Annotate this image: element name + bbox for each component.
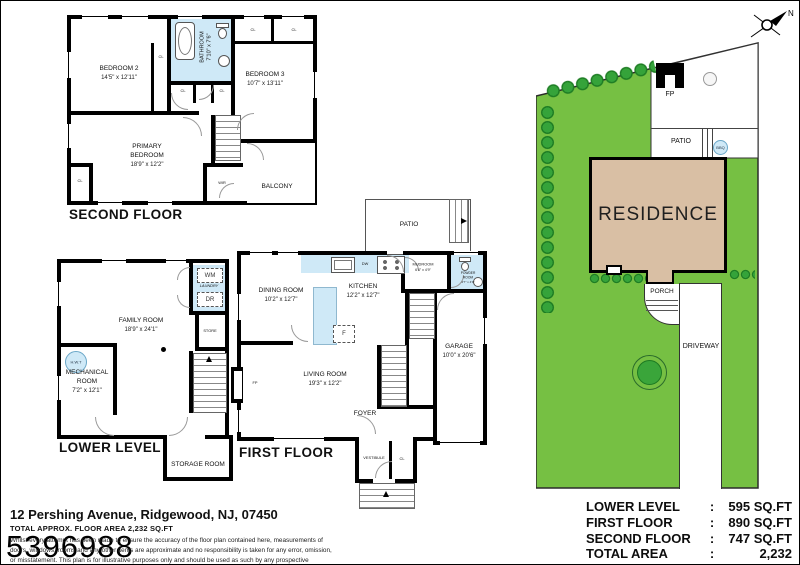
wall-segment (231, 139, 317, 143)
patio-step-line (712, 128, 713, 158)
residence-label: RESIDENCE (598, 204, 718, 226)
wall-segment (195, 315, 199, 349)
window-marker (81, 15, 109, 19)
lower-level-plan: WM LAUNDRY DR H.W.T FAMILY ROOM18'9" x 2… (57, 259, 237, 489)
door-arc (177, 295, 190, 308)
room-label-powder: POWDER ROOM2'7" x 4'9" (457, 271, 480, 284)
wall-segment (271, 19, 274, 43)
fireplace-label: FP (253, 381, 258, 386)
steps-direction-arrow (383, 491, 389, 497)
window-marker (243, 15, 265, 19)
window-marker (313, 71, 317, 99)
bath-sink-icon (218, 55, 230, 67)
door-arc (375, 461, 392, 478)
row-label: TOTAL AREA (586, 546, 704, 565)
patio-step-line (702, 128, 703, 158)
room-label-primary-bedroom: PRIMARY BEDROOM18'9" x 12'2" (116, 143, 178, 169)
dishwasher-label: DW (362, 262, 369, 267)
floorplan-canvas: N (0, 0, 800, 565)
row-value: 890 SQ.FT (720, 515, 792, 531)
room-label-balcony: BALCONY (261, 183, 292, 192)
window-marker (249, 251, 273, 255)
porch-step-line (646, 310, 678, 311)
window-marker (277, 251, 299, 255)
closet-label: CL (292, 28, 297, 33)
disclaimer-text: Whilst every attempt has been made to en… (10, 536, 334, 565)
bbq-label: BBQ (714, 141, 727, 154)
toilet-icon (216, 23, 229, 40)
staircase (381, 345, 407, 407)
utility-marker-icon (703, 72, 717, 86)
driveway (679, 283, 722, 489)
row-label: SECOND FLOOR (586, 531, 704, 547)
window-marker (165, 259, 187, 263)
row-colon: : (704, 546, 720, 565)
fireplace-hearth (234, 371, 242, 399)
wall-segment (483, 251, 487, 445)
residence-notch (606, 265, 622, 275)
wall-segment (151, 43, 154, 113)
wall-segment (67, 15, 71, 205)
door-arc (183, 117, 202, 136)
driveway-label: DRIVEWAY (683, 343, 720, 350)
room-label-dining: DINING ROOM10'2" x 12'7" (259, 287, 304, 304)
compass-n-label: N (788, 9, 794, 18)
room-label-family-room: FAMILY ROOM18'9" x 24'1" (119, 317, 164, 334)
tree-icon (637, 360, 662, 385)
window-marker (67, 123, 71, 149)
room-label-mechanical: MECHANICAL ROOM7'2" x 12'1" (59, 369, 115, 395)
wall-segment (163, 477, 233, 481)
window-marker (273, 437, 325, 441)
toilet-icon (459, 257, 471, 272)
wall-segment (235, 41, 317, 44)
site-patio-label: PATIO (671, 138, 691, 145)
window-marker (483, 317, 487, 345)
area-summary-table: LOWER LEVEL : 595 SQ.FT FIRST FLOOR : 89… (586, 499, 792, 565)
bush-row-icon (729, 269, 755, 280)
fridge-icon: F (333, 325, 355, 343)
porch-step-line (646, 300, 678, 301)
compass-icon: N (739, 4, 797, 46)
wall-segment (89, 163, 93, 203)
door-arc (95, 417, 114, 436)
door-arc (171, 93, 188, 110)
wall-segment (67, 163, 91, 167)
wall-segment (355, 437, 359, 483)
window-marker (177, 15, 203, 19)
lower-level-title: LOWER LEVEL (59, 440, 161, 455)
table-row: FIRST FLOOR : 890 SQ.FT (586, 515, 792, 531)
vestibule-label: VESTIBULE (363, 456, 384, 461)
wall-segment (163, 435, 167, 481)
closet-label: CL (251, 28, 256, 33)
row-value: 595 SQ.FT (720, 499, 792, 515)
room-label-living: LIVING ROOM19'3" x 12'2" (303, 371, 346, 388)
first-floor-plan: PATIO DW F (237, 197, 491, 511)
bathtub-icon (175, 22, 195, 60)
window-marker (97, 201, 123, 205)
second-floor-title: SECOND FLOOR (69, 207, 183, 222)
window-marker (101, 259, 127, 263)
wall-segment (237, 341, 293, 345)
wir-label: WIR (218, 181, 226, 186)
wall-segment (229, 435, 233, 481)
support-post (161, 347, 166, 352)
balcony-wall (315, 139, 317, 205)
closet-label: CL (78, 179, 83, 184)
staircase (193, 353, 227, 413)
row-value: 2,232 SQ.FT (720, 546, 792, 565)
stairs-direction-arrow (206, 356, 212, 362)
wall-segment (193, 81, 196, 103)
steps-direction-arrow (461, 218, 467, 224)
door-arc (437, 293, 454, 310)
property-address: 12 Pershing Avenue, Ridgewood, NJ, 07450 (10, 507, 278, 522)
wall-segment (413, 437, 417, 483)
fp-label: FP (666, 91, 675, 98)
wall-segment (205, 435, 229, 439)
table-row: LOWER LEVEL : 595 SQ.FT (586, 499, 792, 515)
foyer-label: FOYER (354, 410, 376, 419)
window-marker (281, 15, 305, 19)
closet-label: CL (220, 89, 225, 94)
window-marker (67, 51, 71, 79)
garage-door-marker (439, 441, 481, 445)
dryer-icon: DR (197, 292, 223, 307)
room-label-bedroom2: BEDROOM 214'5" x 12'11" (99, 65, 138, 82)
wall-segment (203, 163, 207, 201)
row-label: FIRST FLOOR (586, 515, 704, 531)
room-label-mudroom: MUDROOM6'4" x 4'9" (412, 262, 433, 272)
row-colon: : (704, 515, 720, 531)
table-row: TOTAL AREA : 2,232 SQ.FT (586, 546, 792, 565)
room-label-bathroom: BATHROOM7'10" x 7'6" (200, 31, 215, 62)
wall-segment (57, 343, 117, 347)
first-floor-title: FIRST FLOOR (239, 445, 333, 460)
staircase (409, 293, 435, 339)
door-arc (291, 325, 308, 342)
outdoor-fireplace-leg (675, 75, 684, 88)
wall-segment (67, 111, 199, 115)
row-colon: : (704, 499, 720, 515)
outdoor-fireplace (656, 63, 684, 75)
closet-label: CL (400, 457, 405, 462)
porch-structure (646, 270, 674, 284)
porch-label: PORCH (650, 288, 673, 295)
wall-segment (203, 163, 243, 167)
patio-step-line (707, 128, 708, 158)
kitchen-sink-icon (331, 257, 355, 273)
row-colon: : (704, 531, 720, 547)
window-marker (237, 409, 241, 433)
site-plan: FP PATIO BBQ RESIDENCE PORCH DRIVEWAY (536, 41, 761, 489)
store-label: STORE (203, 329, 216, 334)
storage-room-label: STORAGE ROOM (171, 461, 225, 470)
door-arc (177, 267, 190, 280)
porch-step-line (646, 305, 678, 306)
door-arc (169, 417, 188, 436)
window-marker (57, 281, 61, 307)
fireplace (231, 367, 243, 403)
wall-segment (57, 259, 229, 263)
window-marker (453, 251, 479, 255)
bbq-icon: BBQ (713, 140, 728, 155)
wall-segment (195, 347, 229, 351)
washing-machine-icon: WM (197, 268, 223, 283)
laundry-label: LAUNDRY (200, 284, 218, 289)
table-row: SECOND FLOOR : 747 SQ.FT (586, 531, 792, 547)
closet-label: CL (159, 55, 164, 60)
closet-label: CL (181, 89, 186, 94)
room-label-bedroom3: BEDROOM 310'7" x 13'11" (245, 71, 284, 88)
window-marker (121, 15, 149, 19)
window-marker (147, 201, 173, 205)
room-label-garage: GARAGE10'0" x 20'6" (443, 343, 476, 360)
patio-divider-line (651, 128, 758, 129)
door-arc (247, 143, 264, 160)
window-marker (237, 293, 241, 321)
outdoor-fireplace-leg (656, 75, 665, 88)
tree-column-icon (540, 105, 555, 313)
patio-label: PATIO (400, 221, 419, 230)
room-label-kitchen: KITCHEN12'2" x 12'7" (347, 283, 380, 300)
row-label: LOWER LEVEL (586, 499, 704, 515)
staircase (215, 115, 241, 161)
row-value: 747 SQ.FT (720, 531, 792, 547)
